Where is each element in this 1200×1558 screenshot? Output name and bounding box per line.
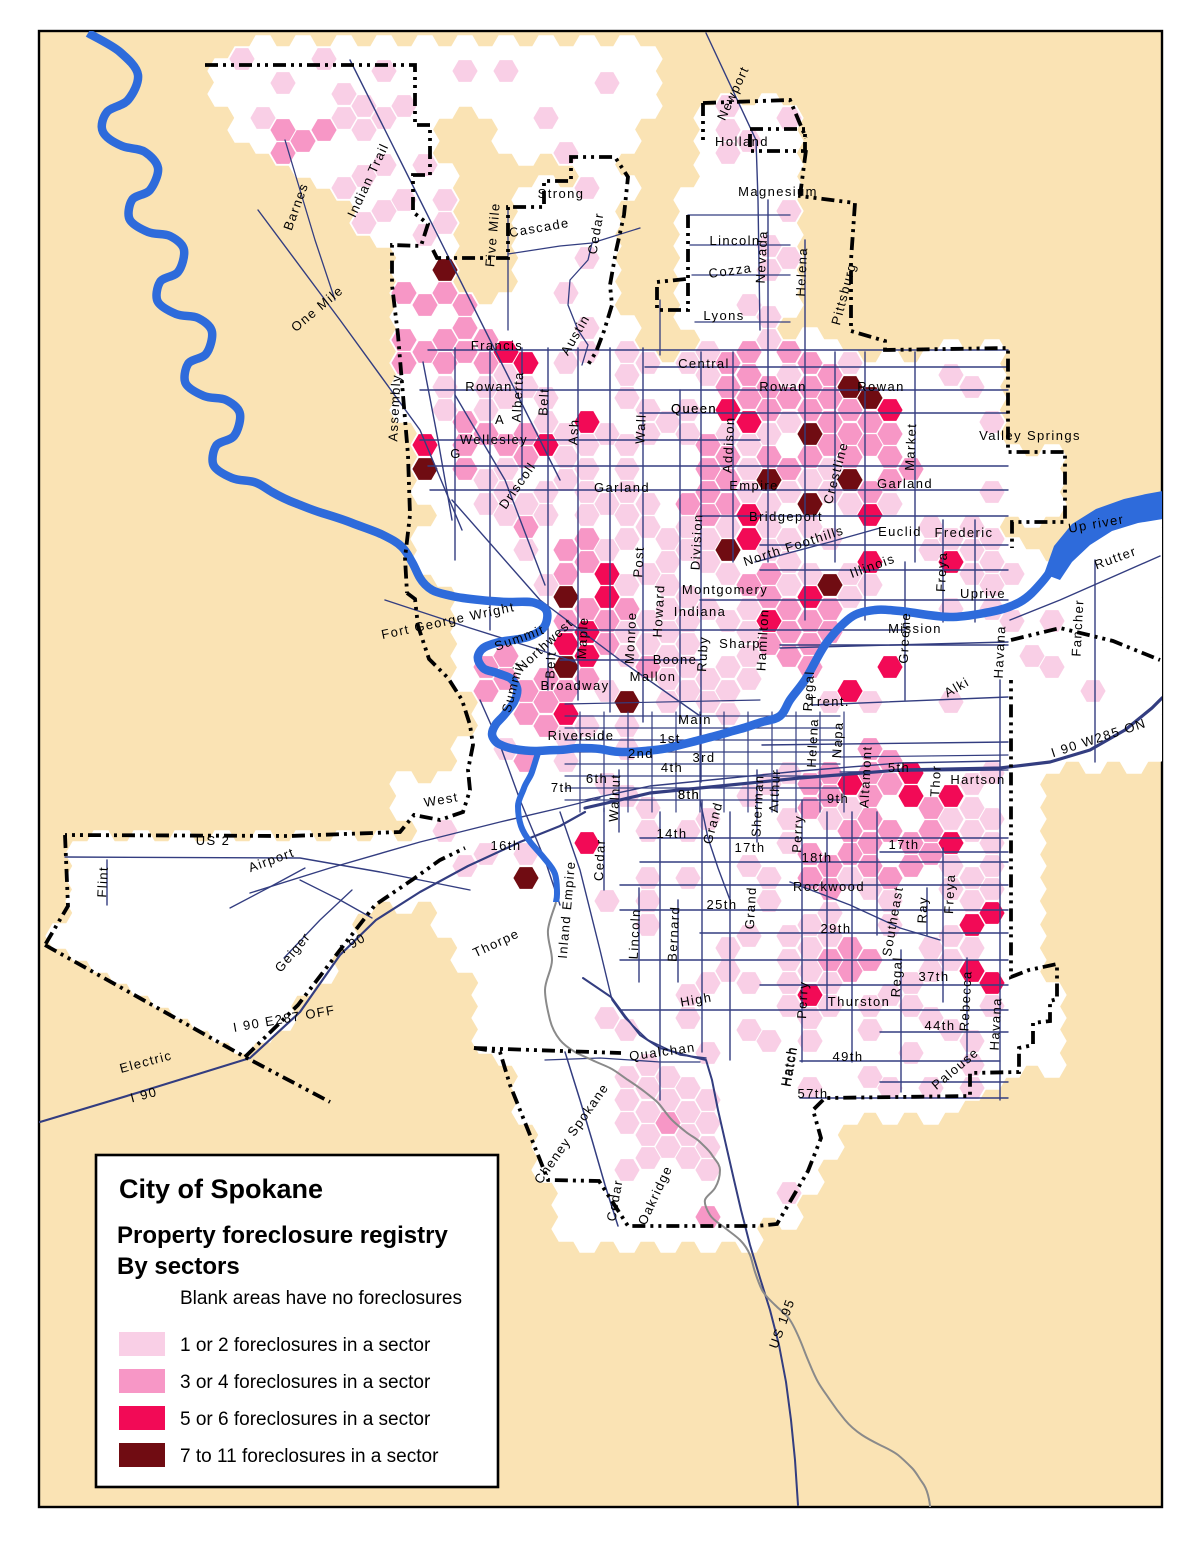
svg-text:Market: Market bbox=[902, 422, 919, 471]
svg-text:29th: 29th bbox=[821, 921, 852, 936]
svg-text:Nevada: Nevada bbox=[753, 230, 771, 284]
svg-text:Grand: Grand bbox=[742, 886, 759, 930]
svg-text:US 2: US 2 bbox=[196, 833, 231, 848]
svg-text:Empire: Empire bbox=[729, 478, 779, 493]
svg-text:25th: 25th bbox=[707, 897, 738, 912]
svg-text:3 or 4 foreclosures in a secto: 3 or 4 foreclosures in a sector bbox=[180, 1372, 431, 1393]
svg-text:Belt: Belt bbox=[535, 387, 551, 416]
svg-text:8th: 8th bbox=[678, 787, 700, 802]
svg-text:Division: Division bbox=[688, 513, 706, 570]
svg-text:17th: 17th bbox=[889, 837, 920, 852]
svg-text:Valley Springs: Valley Springs bbox=[979, 428, 1081, 443]
svg-text:G: G bbox=[450, 446, 462, 461]
svg-text:Boone: Boone bbox=[653, 652, 698, 667]
svg-text:1st: 1st bbox=[659, 731, 681, 746]
svg-text:16th: 16th bbox=[491, 838, 522, 853]
svg-text:Wall: Wall bbox=[632, 413, 649, 444]
svg-text:City of Spokane: City of Spokane bbox=[119, 1174, 323, 1204]
svg-text:6th: 6th bbox=[586, 771, 608, 786]
svg-text:Thor: Thor bbox=[927, 764, 944, 797]
svg-text:Lincoln: Lincoln bbox=[626, 908, 644, 960]
svg-text:Post: Post bbox=[630, 546, 647, 578]
svg-text:Frederic: Frederic bbox=[935, 525, 994, 540]
svg-text:Broadway: Broadway bbox=[540, 678, 609, 693]
svg-text:Ash: Ash bbox=[565, 418, 581, 445]
svg-text:5 or 6 foreclosures in a secto: 5 or 6 foreclosures in a sector bbox=[180, 1409, 431, 1430]
svg-text:Hartson: Hartson bbox=[950, 772, 1005, 787]
svg-text:49th: 49th bbox=[833, 1049, 864, 1064]
svg-text:14th: 14th bbox=[657, 826, 688, 841]
svg-text:Flint: Flint bbox=[94, 866, 111, 898]
svg-text:Thurston: Thurston bbox=[828, 994, 891, 1009]
svg-text:Holland: Holland bbox=[715, 134, 769, 149]
svg-text:Lincoln: Lincoln bbox=[710, 233, 761, 248]
svg-text:2nd: 2nd bbox=[628, 746, 654, 761]
svg-text:Wellesley: Wellesley bbox=[460, 432, 528, 447]
svg-text:A: A bbox=[495, 412, 505, 427]
svg-text:Queen: Queen bbox=[671, 401, 717, 416]
svg-text:Helena: Helena bbox=[804, 718, 822, 768]
svg-text:Main: Main bbox=[678, 712, 712, 727]
svg-text:Cedar: Cedar bbox=[591, 838, 608, 881]
svg-text:37th: 37th bbox=[919, 969, 950, 984]
svg-text:Uprive: Uprive bbox=[960, 586, 1006, 601]
svg-text:44th: 44th bbox=[925, 1018, 956, 1033]
svg-text:7 to 11 foreclosures in a sect: 7 to 11 foreclosures in a sector bbox=[180, 1446, 439, 1467]
svg-text:Maple: Maple bbox=[574, 616, 591, 659]
svg-text:Trent.: Trent. bbox=[808, 694, 850, 709]
svg-text:18th: 18th bbox=[802, 850, 833, 865]
svg-text:Perry: Perry bbox=[789, 814, 806, 853]
svg-text:57th: 57th bbox=[798, 1086, 829, 1101]
svg-text:Monroe: Monroe bbox=[622, 611, 640, 664]
svg-text:Ray: Ray bbox=[914, 896, 930, 924]
svg-text:Rockwood: Rockwood bbox=[793, 879, 865, 894]
svg-text:17th: 17th bbox=[735, 840, 766, 855]
svg-text:Ruby: Ruby bbox=[694, 635, 711, 672]
svg-text:Francis: Francis bbox=[471, 338, 523, 353]
svg-text:Property foreclosure registry: Property foreclosure registry bbox=[117, 1222, 448, 1249]
svg-text:Havana: Havana bbox=[991, 625, 1009, 679]
svg-text:Perry: Perry bbox=[794, 980, 811, 1019]
svg-text:Garland: Garland bbox=[877, 476, 933, 491]
svg-text:Garland: Garland bbox=[594, 480, 650, 495]
svg-text:Helena: Helena bbox=[793, 247, 811, 297]
svg-text:Havana: Havana bbox=[987, 997, 1005, 1051]
svg-text:Alberta: Alberta bbox=[509, 371, 527, 423]
svg-text:1 or 2 foreclosures in a secto: 1 or 2 foreclosures in a sector bbox=[180, 1335, 431, 1356]
svg-text:Montgomery: Montgomery bbox=[682, 582, 768, 597]
svg-text:Belt: Belt bbox=[542, 650, 558, 679]
svg-text:Strong: Strong bbox=[538, 186, 585, 201]
svg-text:Addison: Addison bbox=[720, 416, 738, 473]
svg-text:Mission: Mission bbox=[888, 621, 942, 636]
svg-text:Mallon: Mallon bbox=[630, 669, 677, 684]
svg-text:Bridgeport: Bridgeport bbox=[749, 509, 823, 524]
svg-text:Rebecca: Rebecca bbox=[956, 970, 974, 1032]
svg-text:Bernard: Bernard bbox=[665, 905, 683, 962]
svg-text:Rowan: Rowan bbox=[857, 379, 904, 394]
svg-text:Euclid: Euclid bbox=[878, 524, 922, 539]
svg-text:Magnesium: Magnesium bbox=[738, 184, 818, 199]
svg-text:Walnut: Walnut bbox=[606, 773, 624, 822]
svg-text:4th: 4th bbox=[661, 760, 683, 775]
svg-text:Napa: Napa bbox=[829, 721, 846, 758]
svg-text:Greene: Greene bbox=[896, 612, 914, 664]
svg-text:Lyons: Lyons bbox=[703, 308, 744, 323]
svg-text:Freya: Freya bbox=[933, 551, 950, 592]
svg-text:Freya: Freya bbox=[941, 873, 958, 914]
svg-text:5th: 5th bbox=[888, 760, 910, 775]
svg-text:9th: 9th bbox=[827, 791, 849, 806]
svg-text:Fancher: Fancher bbox=[1069, 599, 1087, 657]
svg-text:Blank areas have no foreclosur: Blank areas have no foreclosures bbox=[180, 1288, 462, 1309]
svg-text:Rowan: Rowan bbox=[759, 379, 806, 394]
svg-text:Rowan: Rowan bbox=[465, 379, 512, 394]
svg-text:Regal: Regal bbox=[888, 956, 905, 998]
svg-text:Howard: Howard bbox=[650, 584, 668, 638]
svg-text:Arthur: Arthur bbox=[766, 768, 783, 813]
svg-text:Central: Central bbox=[678, 356, 730, 371]
svg-text:Indiana: Indiana bbox=[674, 604, 726, 619]
svg-text:Riverside: Riverside bbox=[548, 728, 615, 743]
svg-text:By sectors: By sectors bbox=[117, 1253, 240, 1280]
svg-text:7th: 7th bbox=[551, 780, 573, 795]
svg-text:3rd: 3rd bbox=[693, 750, 716, 765]
